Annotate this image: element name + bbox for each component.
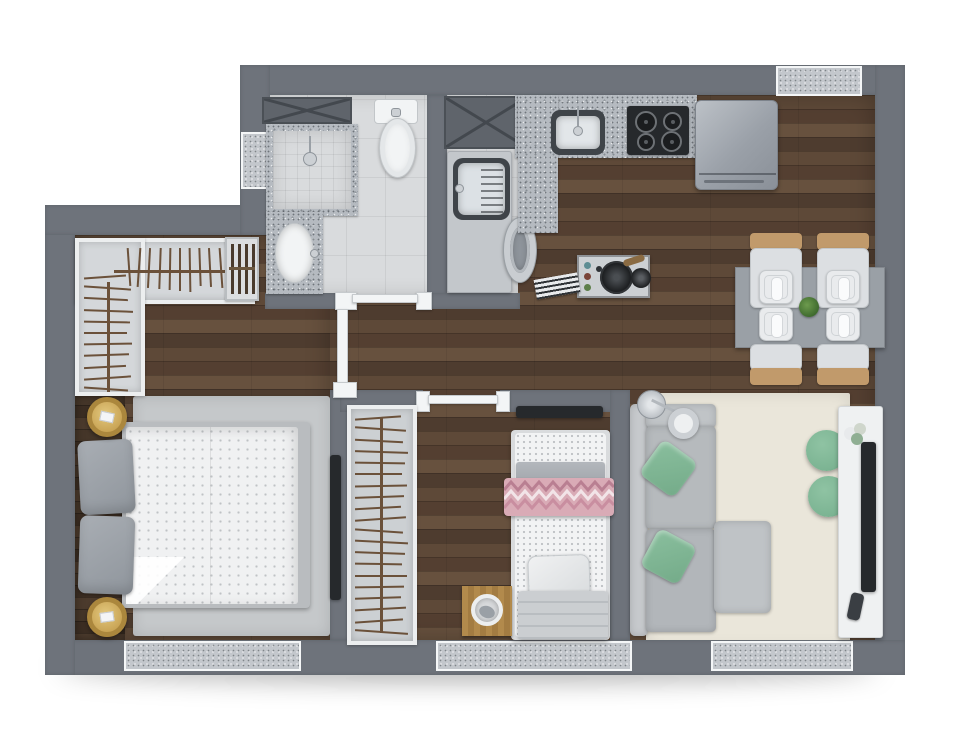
place-setting (759, 270, 793, 304)
vanity-counter (266, 212, 323, 294)
flower-decor (842, 423, 870, 447)
clothes-hanger (218, 248, 223, 288)
bathroom-overhead-cabinet (262, 97, 352, 124)
fridge-door-seam (699, 173, 776, 175)
closet-rail (107, 282, 110, 392)
washboard-ribs (481, 165, 503, 213)
wall-shelf (516, 406, 603, 418)
pet-bowl-contents (477, 604, 496, 621)
utility-sink (453, 158, 510, 220)
window-kitchen (776, 66, 862, 96)
clothes-hanger (355, 528, 403, 533)
faucet-icon (310, 249, 319, 258)
tv (861, 442, 876, 592)
bedroom-wall-tv (330, 455, 341, 600)
chevron-pattern-icon (504, 478, 614, 516)
rack-bar (229, 267, 255, 270)
dining-chair (817, 344, 869, 371)
dining-chair (750, 344, 802, 371)
wardrobe-rail (380, 417, 383, 633)
condiment-icon (584, 273, 591, 280)
nightstand (87, 397, 127, 437)
cabinet-x-icon (446, 98, 526, 147)
flower-leaf-icon (851, 433, 863, 445)
place-setting (826, 270, 860, 304)
clothes-hanger (84, 364, 126, 368)
side-table (462, 586, 512, 636)
shower-floor (273, 131, 351, 209)
burner-icon (637, 133, 655, 151)
duvet-crease (210, 427, 211, 604)
faucet-icon (455, 184, 464, 193)
place-setting (759, 307, 793, 341)
condiment-icon (596, 266, 602, 272)
clothes-hanger (158, 248, 161, 289)
fridge-handle-icon (704, 180, 764, 183)
wall-laundry-bottom (427, 293, 520, 309)
bedroom2-door (428, 395, 498, 404)
burner-icon (635, 111, 657, 133)
chevron-blanket (504, 478, 614, 516)
faucet-spout (577, 106, 579, 126)
toilet-bowl (379, 118, 416, 178)
nightstand (87, 597, 127, 637)
bed-pillow (78, 515, 136, 595)
arc-lamp-shade (668, 408, 699, 439)
bed-pillow (77, 439, 136, 516)
clothes-hanger (168, 248, 171, 290)
dining-chair-back (817, 368, 869, 385)
cooktop (627, 106, 689, 155)
shoe-rack (225, 237, 259, 301)
window-bedroom2 (436, 641, 632, 671)
kitchen-sink (551, 110, 605, 155)
door-frame (496, 391, 510, 412)
clothes-hanger (355, 618, 403, 623)
clothes-hanger (355, 415, 401, 420)
folded-blanket (518, 591, 608, 639)
clothes-hanger (147, 248, 151, 288)
window-bathroom (241, 132, 268, 189)
bathroom-door (352, 294, 418, 303)
wall-left (45, 205, 75, 675)
burner-icon (663, 112, 682, 131)
faucet-icon (573, 126, 583, 136)
window-bedroom1 (124, 641, 301, 671)
clothes-hanger (84, 332, 127, 334)
paddle-icon (622, 254, 645, 267)
book-icon (99, 611, 114, 623)
serving-tray-table (577, 255, 650, 298)
double-bed-duvet (126, 427, 298, 604)
bedroom1-door (337, 309, 348, 387)
clothes-hanger (137, 248, 142, 287)
clothes-hanger (84, 297, 128, 301)
burner-icon (661, 131, 682, 152)
refrigerator (695, 100, 778, 190)
floor-plan (0, 0, 960, 735)
cabinet-x-icon (264, 99, 350, 122)
clothes-hanger (355, 473, 402, 475)
flush-button-icon (391, 108, 401, 117)
window-living (711, 641, 853, 671)
book-icon (99, 411, 115, 424)
small-disc-icon (631, 268, 651, 288)
clothes-hanger (355, 563, 402, 566)
wall-bathroom-bottom (265, 293, 340, 309)
door-frame (416, 292, 432, 310)
washer-door-icon (510, 227, 530, 273)
laundry-cabinet (447, 151, 512, 293)
wall-hall-top (45, 205, 270, 235)
vanity-sink (275, 223, 314, 283)
clothes-hanger (355, 506, 401, 510)
condiment-icon (584, 262, 591, 269)
door-frame (333, 382, 357, 398)
shower-head-icon (303, 152, 317, 166)
place-setting (826, 307, 860, 341)
clothes-hanger (198, 248, 201, 286)
condiment-icon (584, 284, 591, 291)
clothes-hanger (355, 438, 403, 443)
wall-living-divider (610, 390, 630, 640)
clothes-hanger (355, 596, 401, 600)
clothes-hanger (84, 275, 126, 280)
shower (266, 124, 358, 216)
dining-chair-back (750, 368, 802, 385)
clothes-hanger (208, 248, 212, 287)
pet-bowl (471, 594, 503, 626)
duvet-fold (126, 557, 196, 604)
centerpiece-plant (799, 297, 819, 317)
sofa-chaise (714, 521, 771, 613)
